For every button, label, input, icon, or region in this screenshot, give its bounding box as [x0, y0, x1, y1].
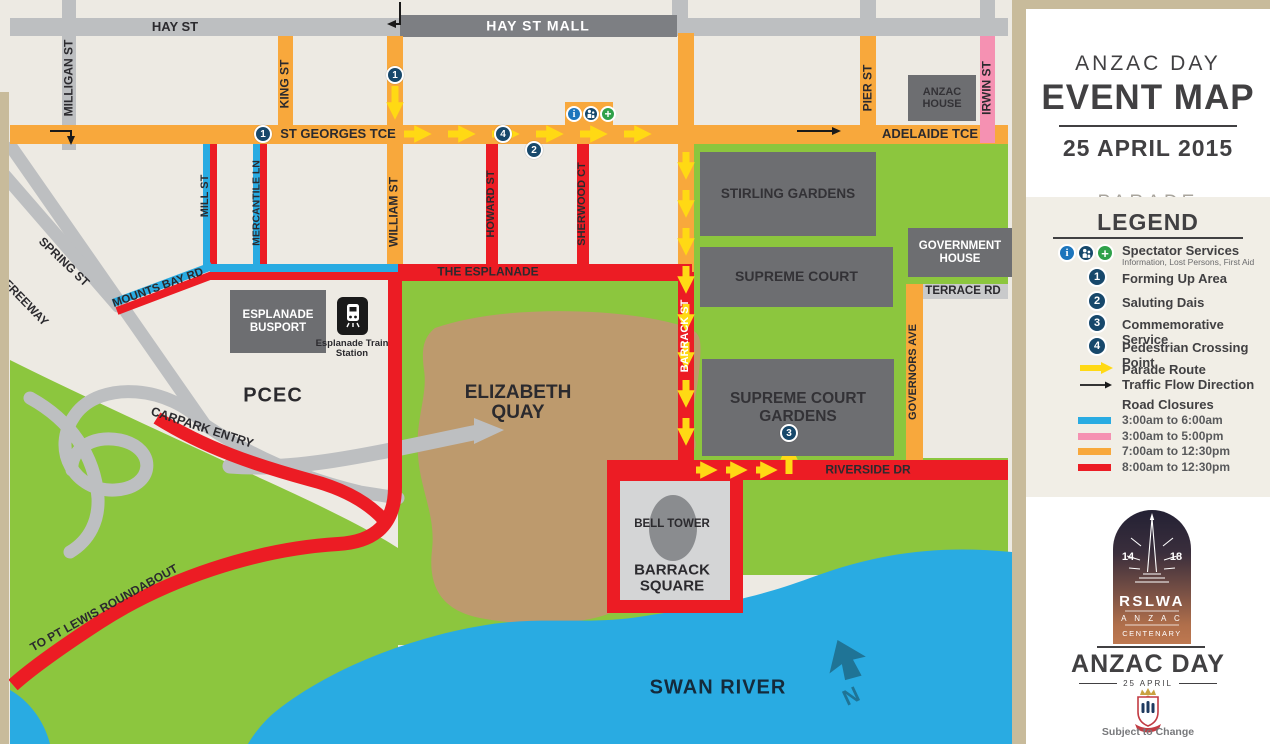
rslwa-centenary-logo: 14 18 RSLWA A N Z A C CENTENARY	[1113, 510, 1191, 644]
footer-dash-right	[1179, 683, 1217, 684]
closure-label-pink: 3:00am to 5:00pm	[1122, 429, 1223, 443]
label-the-esplanade: THE ESPLANADE	[437, 266, 538, 279]
closure-label-red: 8:00am to 12:30pm	[1122, 460, 1230, 474]
marker-saluting-dais: 2	[525, 141, 543, 159]
footer-divider	[1097, 646, 1205, 648]
marker-forming-up-1: 1	[254, 125, 272, 143]
title-divider	[1059, 125, 1237, 127]
marker-commemorative: 3	[780, 424, 798, 442]
label-governors-ave: GOVERNORS AVE	[908, 324, 920, 420]
closure-chip-orange	[1078, 448, 1111, 455]
label-irwin-st: IRWIN ST	[981, 61, 994, 115]
label-barrack-square: BARRACK SQUARE	[617, 562, 727, 594]
label-bell-tower: BELL TOWER	[634, 518, 710, 530]
building-stirling-gardens: STIRLING GARDENS	[700, 152, 876, 236]
legend-panel: LEGEND i + Spectator Services Informatio…	[1026, 197, 1270, 497]
label-terrace-rd: TERRACE RD	[925, 285, 1000, 297]
info-sidebar: ANZAC DAY EVENT MAP 25 APRIL 2015 PARADE…	[1026, 0, 1270, 744]
closure-chip-blue	[1078, 417, 1111, 424]
building-anzac-house: ANZAC HOUSE	[908, 75, 976, 121]
footer-dash-left	[1079, 683, 1117, 684]
closure-label-orange: 7:00am to 12:30pm	[1122, 444, 1230, 458]
train-station-icon	[337, 297, 368, 335]
building-supreme-court-gardens: SUPREME COURT GARDENS	[702, 359, 894, 456]
label-mill-st: MILL ST	[200, 175, 212, 218]
logo-centenary: CENTENARY	[1122, 629, 1182, 638]
marker-crossing: 4	[494, 125, 512, 143]
label-hay-st-mall: HAY ST MALL	[486, 19, 590, 34]
lost-persons-icon	[583, 106, 599, 122]
event-title-line2: EVENT MAP	[1026, 78, 1270, 118]
legend-marker-2: 2	[1087, 291, 1107, 311]
legend-traffic-flow: Traffic Flow Direction	[1122, 377, 1254, 392]
logo-org: RSLWA	[1119, 593, 1185, 610]
closure-chip-pink	[1078, 433, 1111, 440]
label-pcec: PCEC	[243, 386, 303, 407]
label-adelaide-tce: ADELAIDE TCE	[882, 127, 978, 141]
legend-marker-4: 4	[1087, 336, 1107, 356]
logo-anzac: A N Z A C	[1121, 614, 1183, 623]
esplanade-busport-label: ESPLANADE BUSPORT	[239, 309, 317, 335]
closure-label-blue: 3:00am to 6:00am	[1122, 413, 1223, 427]
legend-road-closures-title: Road Closures	[1122, 397, 1214, 412]
legend-marker-3: 3	[1087, 313, 1107, 333]
building-supreme-court: SUPREME COURT	[700, 247, 893, 307]
marker-forming-up-2: 1	[386, 66, 404, 84]
label-riverside-dr: RIVERSIDE DR	[825, 464, 910, 477]
legend-traffic-flow-arrow	[1078, 380, 1114, 390]
logo-artwork: 14 18 RSLWA A N Z A C CENTENARY	[1113, 510, 1191, 644]
legend-underline	[1053, 237, 1243, 239]
legend-item-forming-up: Forming Up Area	[1122, 271, 1227, 286]
label-st-georges-tce: ST GEORGES TCE	[280, 127, 396, 141]
first-aid-icon: +	[600, 106, 616, 122]
legend-parade-route: Parade Route	[1122, 362, 1206, 377]
legend-spectator-sub: Information, Lost Persons, First Aid	[1122, 257, 1254, 267]
logo-year-left: 14	[1122, 551, 1135, 563]
legend-marker-1: 1	[1087, 267, 1107, 287]
page-edge-right	[1012, 0, 1026, 744]
subject-to-change-note: Subject to Change	[1026, 726, 1270, 738]
stirling-gardens-label: STIRLING GARDENS	[721, 186, 855, 201]
terrace-precinct	[923, 298, 1010, 458]
government-house-label: GOVERNMENT HOUSE	[908, 240, 1012, 266]
footer-anzac-day: ANZAC DAY	[1026, 650, 1270, 679]
anzac-house-label: ANZAC HOUSE	[908, 86, 976, 111]
legend-parade-route-arrow	[1078, 362, 1114, 374]
building-government-house: GOVERNMENT HOUSE	[908, 228, 1012, 277]
legend-title: LEGEND	[1026, 209, 1270, 236]
label-howard-st: HOWARD ST	[486, 170, 498, 237]
anzac-event-map-page: ANZAC HOUSE STIRLING GARDENS SUPREME COU…	[0, 0, 1270, 744]
train-station-label: Esplanade Train Station	[309, 339, 395, 359]
supreme-court-label: SUPREME COURT	[735, 269, 858, 285]
legend-information-icon: i	[1058, 244, 1076, 262]
supreme-court-gardens-label: SUPREME COURT GARDENS	[723, 390, 873, 425]
label-barrack-st: BARRACK ST	[680, 300, 692, 373]
train-glyph	[343, 302, 363, 330]
label-milligan-st: MILLIGAN ST	[63, 40, 76, 117]
event-title-line1: ANZAC DAY	[1026, 52, 1270, 76]
information-icon: i	[566, 106, 582, 122]
legend-item-saluting-dais: Saluting Dais	[1122, 295, 1204, 310]
sidebar-top-strip	[1026, 0, 1270, 9]
label-swan-river: SWAN RIVER	[650, 678, 787, 699]
legend-lost-persons-icon	[1077, 244, 1095, 262]
closure-chip-red	[1078, 464, 1111, 471]
label-mercantile-ln: MERCANTILE LN	[251, 160, 262, 246]
logo-year-right: 18	[1170, 551, 1182, 563]
page-edge-left	[0, 92, 9, 744]
label-elizabeth-quay: ELIZABETH QUAY	[453, 383, 583, 423]
legend-first-aid-icon: +	[1096, 244, 1114, 262]
legend-spectator-label: Spectator Services	[1122, 243, 1239, 258]
event-date: 25 APRIL 2015	[1026, 135, 1270, 162]
label-william-st: WILLIAM ST	[388, 177, 401, 247]
label-hay-st: HAY ST	[152, 20, 198, 34]
label-sherwood-ct: SHERWOOD CT	[577, 162, 589, 246]
label-pier-st: PIER ST	[862, 65, 875, 112]
label-king-st: KING ST	[279, 60, 292, 109]
